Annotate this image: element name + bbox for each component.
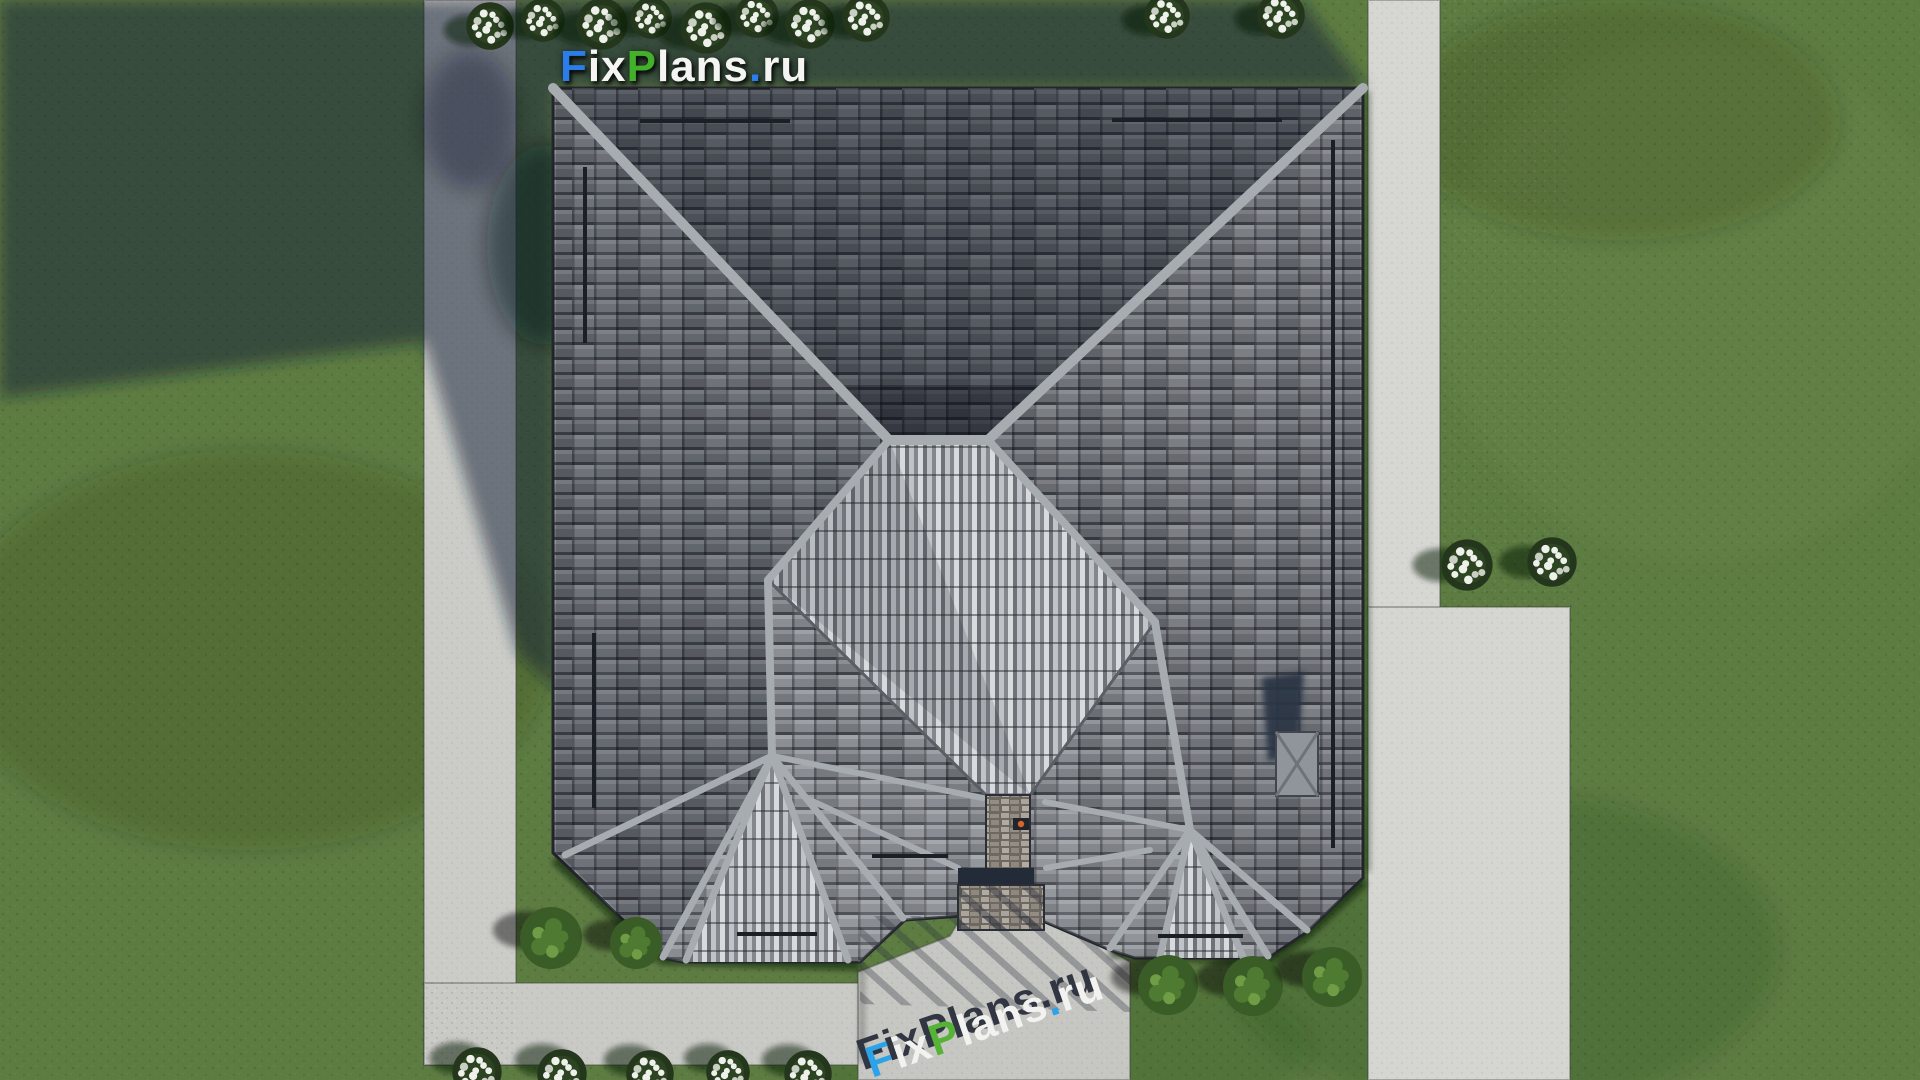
site-logo: FixPlans.ru <box>560 42 808 92</box>
logo-letter: . <box>749 42 762 92</box>
site-plan-render: FixPlans.ru FixPlans.ru FixPlans.ru <box>0 0 1920 1080</box>
logo-letter: ix <box>588 42 627 92</box>
entrance-dark-band <box>958 868 1034 885</box>
logo-letter: F <box>560 42 588 92</box>
logo-letter: lans <box>657 42 749 92</box>
logo-letter: ru <box>762 42 808 92</box>
site-plan-canvas: FixPlans.ru FixPlans.ru <box>0 0 1920 1080</box>
vent-marker-dot <box>1018 821 1024 827</box>
house-roof <box>553 88 1363 962</box>
logo-letter: P <box>627 42 657 92</box>
